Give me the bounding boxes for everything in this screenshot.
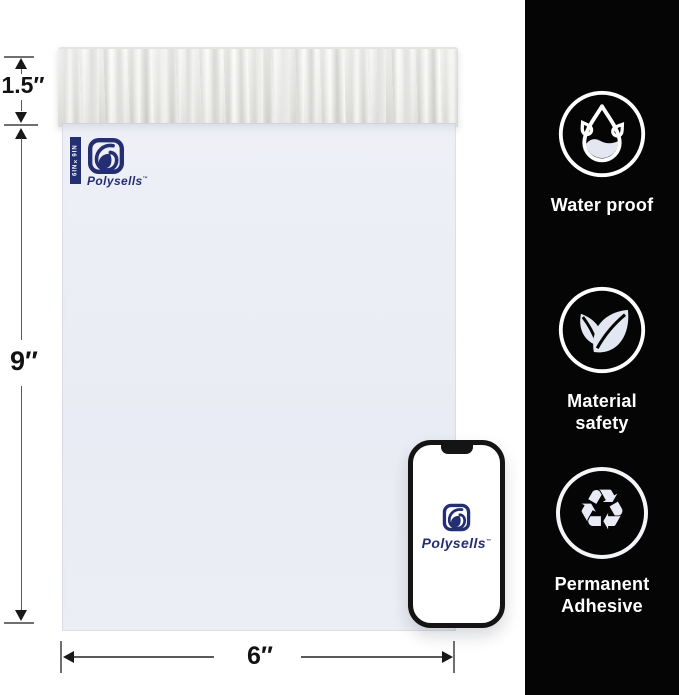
product-infographic: 6IN×9IN Polysells™ Polysells™ 1. (0, 0, 679, 695)
phone-mockup: Polysells™ (408, 440, 505, 628)
feature-waterproof: Water proof (525, 88, 679, 217)
mailer-flap (58, 47, 458, 127)
dim-line (74, 656, 214, 658)
dim-tick (453, 641, 455, 673)
water-drop-icon (556, 88, 648, 180)
brand-logo-mark (442, 503, 471, 532)
arrow-down-icon (15, 112, 27, 123)
brand-wordmark: Polysells™ (422, 536, 492, 550)
arrow-right-icon (442, 651, 453, 663)
width-dimension-label: 6″ (228, 644, 292, 669)
dim-tick (4, 622, 34, 624)
feature-label: Water proof (539, 195, 665, 217)
dim-line (301, 656, 444, 658)
mailer-body: 6IN×9IN Polysells™ (62, 123, 456, 631)
size-tag-bar: 6IN×9IN (70, 137, 81, 184)
feature-label: Material safety (539, 391, 665, 435)
leaves-icon (556, 284, 648, 376)
feature-material-safety: Material safety (525, 284, 679, 435)
dim-tick (4, 124, 38, 126)
mailer-brand-logo: 6IN×9IN Polysells™ (70, 137, 148, 187)
brand-wordmark: Polysells™ (87, 175, 148, 187)
feature-permanent-adhesive: ♻ Permanent Adhesive (525, 467, 679, 618)
arrow-up-icon (15, 58, 27, 69)
dim-line (21, 386, 23, 611)
recycle-icon: ♻ (556, 467, 648, 559)
dim-line (21, 138, 23, 340)
trademark-symbol: ™ (143, 176, 148, 182)
brand-logo-mark (87, 137, 125, 175)
height-dimension-label: 9″ (2, 348, 46, 375)
feature-sidebar: Water proof Material safety ♻ Permane (525, 0, 679, 695)
feature-label: Permanent Adhesive (539, 574, 665, 618)
flap-dimension-label: 1.5″ (0, 74, 46, 97)
dim-line (21, 100, 23, 111)
arrow-down-icon (15, 610, 27, 621)
phone-notch (441, 444, 473, 454)
dim-tick (60, 641, 62, 673)
arrow-left-icon (63, 651, 74, 663)
trademark-symbol: ™ (486, 538, 491, 544)
